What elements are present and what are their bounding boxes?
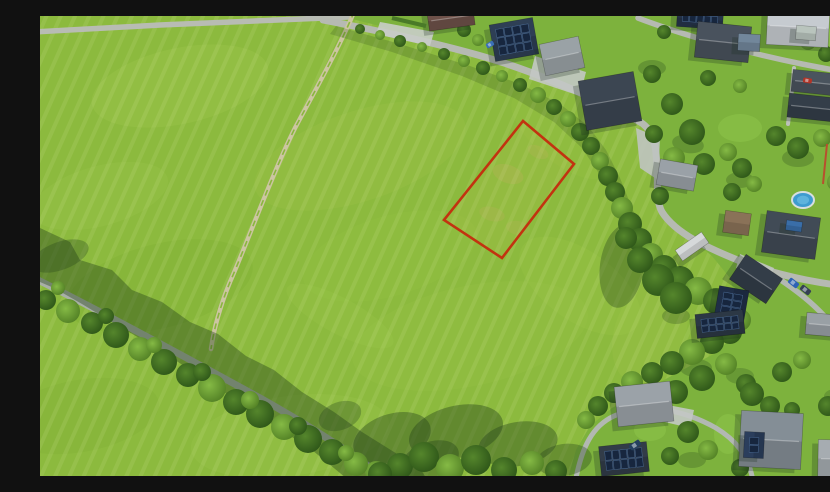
tree: [733, 79, 747, 93]
tree: [577, 411, 595, 429]
roof-pitch-shade: [738, 42, 760, 52]
tree: [643, 65, 661, 83]
solar-panel: [497, 37, 506, 46]
solar-panel: [702, 326, 709, 333]
tree: [746, 176, 762, 192]
tree: [627, 247, 653, 273]
tree: [289, 417, 307, 435]
solar-panel: [612, 450, 620, 460]
aerial-photo-canvas: [40, 16, 830, 476]
tree: [476, 61, 490, 75]
house: [716, 209, 751, 239]
solar-panel: [689, 16, 696, 22]
tree: [520, 451, 544, 475]
solar-panel: [635, 448, 643, 458]
solar-panel: [750, 437, 759, 444]
solar-panel: [522, 33, 531, 42]
tree: [355, 24, 365, 34]
tree: [677, 421, 699, 443]
house: [755, 210, 821, 264]
solar-panel: [507, 45, 516, 54]
solar-panel: [627, 448, 635, 458]
solar-panel: [749, 445, 758, 452]
solar-panel: [682, 16, 689, 22]
tree: [513, 78, 527, 92]
tree: [417, 42, 427, 52]
tree: [582, 137, 600, 155]
tree: [661, 93, 683, 115]
tree: [530, 87, 546, 103]
tree: [732, 158, 752, 178]
tree: [645, 125, 663, 143]
house: [593, 442, 650, 476]
house: [812, 439, 830, 476]
tree: [657, 25, 671, 39]
car-windshield: [805, 79, 809, 83]
solar-panel: [732, 323, 739, 330]
tree: [496, 70, 508, 82]
solar-panel: [512, 25, 521, 34]
tree: [679, 119, 705, 145]
solar-panel: [701, 319, 708, 326]
solar-panel: [613, 460, 621, 470]
solar-panel: [708, 318, 715, 325]
tree: [700, 70, 716, 86]
lawn-patch: [718, 114, 762, 142]
solar-panel: [514, 34, 523, 43]
solar-panel: [524, 42, 533, 51]
tree: [472, 34, 484, 46]
tree: [241, 391, 259, 409]
tree: [660, 282, 692, 314]
solar-panel: [732, 301, 742, 308]
tree: [409, 442, 439, 472]
roof-pitch-shade: [818, 459, 830, 476]
solar-panel: [620, 449, 628, 459]
tree: [394, 35, 406, 47]
pool-center: [797, 196, 809, 205]
solar-panel: [605, 451, 613, 461]
tree: [772, 362, 792, 382]
roof-pitch-shade: [753, 432, 764, 458]
solar-panel: [495, 28, 504, 37]
tree: [103, 322, 129, 348]
solar-panel: [717, 324, 724, 331]
tree: [375, 30, 385, 40]
solar-panel: [731, 316, 738, 323]
tree: [56, 299, 80, 323]
house: [689, 310, 746, 343]
tree: [461, 445, 491, 475]
tree: [660, 351, 684, 375]
solar-panel: [636, 458, 644, 468]
house: [572, 72, 642, 136]
solar-panel: [505, 36, 514, 45]
tree: [698, 440, 718, 460]
tree: [661, 447, 679, 465]
tree: [715, 353, 737, 375]
tree: [787, 137, 809, 159]
solar-panel: [504, 27, 513, 36]
tree: [615, 227, 637, 249]
tree: [338, 445, 354, 461]
solar-panel: [521, 24, 530, 33]
solar-panel: [709, 325, 716, 332]
tree: [560, 111, 576, 127]
solar-panel: [733, 294, 743, 301]
house: [799, 312, 830, 342]
solar-panel: [722, 299, 732, 306]
solar-panel: [716, 317, 723, 324]
solar-panel: [621, 459, 629, 469]
tree: [98, 308, 114, 324]
solar-panel: [724, 316, 731, 323]
tree: [193, 363, 211, 381]
tree: [458, 55, 470, 67]
solar-panel: [499, 46, 508, 55]
tree: [740, 382, 764, 406]
solar-panel: [724, 323, 731, 330]
tree: [723, 183, 741, 201]
tree: [689, 365, 715, 391]
aerial-plot-photo: [40, 16, 830, 476]
solar-panel: [515, 43, 524, 52]
house: [737, 431, 765, 462]
tree: [146, 337, 162, 353]
tree: [438, 48, 450, 60]
tree: [641, 362, 663, 384]
tree: [793, 351, 811, 369]
tree: [719, 143, 737, 161]
tree: [51, 281, 65, 295]
solar-panel: [606, 461, 614, 471]
house: [608, 381, 674, 431]
solar-panel: [723, 292, 733, 299]
tree: [546, 99, 562, 115]
tree: [766, 126, 786, 146]
